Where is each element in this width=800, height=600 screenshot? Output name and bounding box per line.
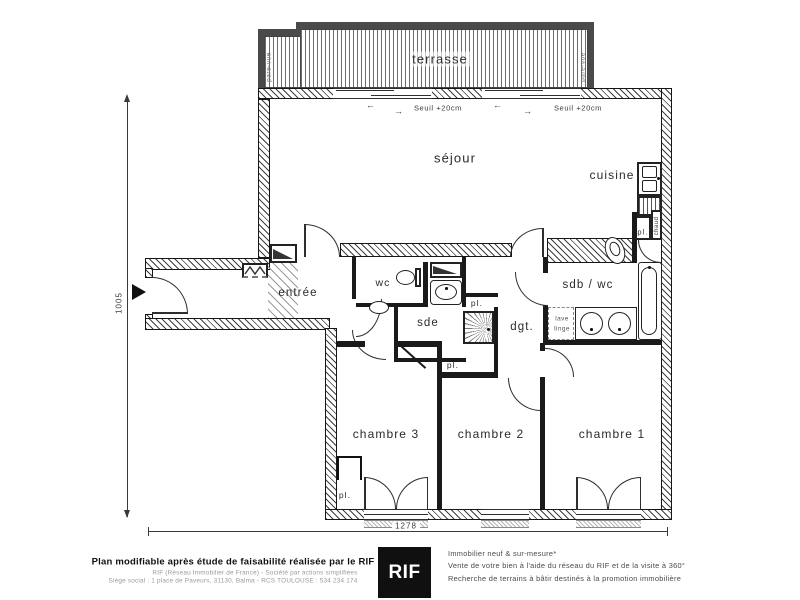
wall-ch2-ch3-divider — [437, 341, 442, 509]
pare-vue-left-label: pare-vue — [266, 52, 273, 82]
lave-linge-label-1: lave — [555, 316, 569, 323]
kitchen-sink-unit — [637, 162, 662, 196]
kitchen-basin-top — [642, 166, 657, 178]
chaud-label: chaud — [654, 217, 660, 236]
towel-shelf-box — [430, 262, 462, 278]
slider2-line-a — [485, 90, 543, 91]
dim-width-tick-left — [148, 527, 149, 536]
dgt-label: dgt. — [510, 321, 534, 333]
slider1-line-b — [371, 95, 431, 96]
floor-plan-image: terrasse pare-vue pare-vue ← → Seuil +20… — [0, 0, 800, 600]
bathtub-inner — [641, 267, 657, 335]
seuil-label-1: Seuil +20cm — [414, 104, 462, 113]
electrical-panel-box — [242, 263, 268, 278]
terrace-right-band — [587, 22, 594, 88]
ch2-door-arc — [508, 378, 541, 411]
footer-right-block: Immobilier neuf & sur-mesure* Vente de v… — [448, 548, 718, 585]
dim-width-tick-right — [667, 527, 668, 536]
pl-ch3-label: pl. — [339, 490, 351, 500]
pl-cuisine-label: pl. — [637, 228, 648, 237]
kitchen-faucet-dot — [657, 177, 660, 180]
sejour-entree-door-arc — [304, 224, 340, 257]
seuil-label-2: Seuil +20cm — [554, 104, 602, 113]
footer-right-line3: Recherche de terrains à bâtir destinés à… — [448, 573, 718, 585]
wall-kitchen-col — [632, 212, 637, 263]
footer-right-line2: Vente de votre bien à l'aide du réseau d… — [448, 560, 718, 572]
rif-logo: RIF — [378, 547, 431, 598]
ch1-window-leaf-right — [640, 477, 642, 509]
vanity-double-sink — [575, 307, 637, 340]
wall-sink-col-right — [462, 257, 466, 307]
wc-toilet-icon — [396, 270, 415, 285]
sdb-door-arc — [515, 272, 548, 306]
sde-sink-faucet-dot — [445, 287, 448, 290]
kitchen-basin-bottom — [642, 180, 657, 192]
ch2-window-sill — [481, 520, 529, 528]
washing-machine-box: lave linge — [548, 307, 574, 340]
ch3-window-arc-left — [364, 477, 396, 509]
ch3-closet — [337, 456, 362, 480]
sejour-dgt-door-arc — [510, 228, 543, 257]
dim-height-arrow-top — [124, 94, 130, 102]
dim-height-arrow-bottom — [124, 510, 130, 518]
chambre3-label: chambre 3 — [353, 427, 420, 441]
bathtub-icon — [638, 262, 662, 340]
entrance-door-arc — [152, 277, 188, 314]
sde-label: sde — [417, 317, 439, 329]
footer-left-bold: Plan modifiable après étude de faisabili… — [92, 557, 375, 568]
chambre2-label: chambre 2 — [458, 427, 525, 441]
pl-ch2-label: pl. — [447, 360, 459, 370]
bathtub-faucet-dot — [648, 266, 651, 269]
kitchen-closet-door-arc — [638, 240, 661, 263]
sejour-dgt-door-leaf — [542, 228, 544, 257]
slider1-arrow-left-icon: ← — [366, 100, 376, 110]
doormat-box — [270, 244, 297, 263]
vanity-dot-right — [618, 328, 621, 331]
wall-wc-sde-divider — [423, 262, 428, 306]
wall-pl-top — [462, 293, 498, 297]
vanity-basin-right — [608, 312, 631, 335]
wall-ch2-top — [442, 372, 498, 378]
sejour-label: séjour — [434, 151, 476, 166]
wall-sde-left — [394, 307, 398, 360]
shower-icon — [463, 311, 494, 344]
shower-drain-dot — [487, 328, 490, 331]
wall-dgt-left — [494, 307, 498, 378]
footer-right-line1: Immobilier neuf & sur-mesure* — [448, 548, 718, 560]
vanity-dot-left — [590, 328, 593, 331]
terrace-label: terrasse — [410, 52, 470, 67]
wall-corridor-bottom — [145, 318, 330, 330]
pl-sde-label: pl. — [471, 298, 483, 308]
sejour-entree-door-leaf — [304, 224, 306, 257]
sdb-wc-label: sdb / wc — [563, 279, 614, 291]
entrance-pointer-icon — [132, 284, 146, 300]
rif-logo-text: RIF — [388, 562, 420, 584]
wc-corner-sink-icon — [369, 301, 389, 314]
ch1-window-sill — [576, 520, 641, 528]
sdb-toilet-inner — [607, 240, 622, 258]
ch1-window-leaf-left — [576, 477, 578, 509]
shelf-icon — [432, 264, 460, 276]
wall-ch3-top-left — [337, 341, 365, 347]
dim-height-line — [127, 97, 128, 517]
slider2-arrow-right-icon: → — [523, 106, 533, 116]
slider1-line-a — [336, 90, 394, 91]
wall-top — [258, 88, 672, 99]
ch1-door-arc — [545, 348, 574, 377]
footer-left-line2: RIF (Réseau Immobilier de France) - Soci… — [152, 569, 357, 576]
ch2-window-midline — [481, 514, 529, 515]
ch1-window-midline — [576, 514, 641, 515]
ch3-window-leaf-left — [364, 477, 366, 509]
ch3-window-arc-right — [396, 477, 428, 509]
slider2-arrow-left-icon: ← — [493, 100, 503, 110]
zigzag-icon — [244, 265, 266, 276]
wall-sejour-left — [258, 99, 270, 258]
wall-ch1-ch2-divider — [540, 377, 545, 509]
wall-right — [661, 88, 672, 520]
ch3-window-leaf-right — [427, 477, 429, 509]
footer-left-line3: Siège social : 1 place de Paveurs, 31130… — [109, 577, 358, 584]
wall-chambers-left — [325, 328, 337, 520]
wall-wc-left — [352, 257, 356, 299]
slider2-line-b — [520, 95, 580, 96]
cuisine-label: cuisine — [589, 168, 634, 182]
ch3-window-midline — [364, 514, 428, 515]
wall-sdb-bottom — [543, 340, 662, 345]
wall-sdb-left-upper — [543, 257, 548, 273]
entrance-door-leaf — [152, 312, 188, 314]
ch1-window-arc-right — [608, 477, 641, 509]
wc-label: wc — [375, 277, 390, 289]
entree-label: entrée — [278, 287, 317, 299]
wedge-icon — [272, 246, 295, 261]
dim-width-label: 1278 — [392, 522, 420, 531]
slider1-arrow-right-icon: → — [394, 106, 404, 116]
dim-height-label: 1005 — [115, 292, 124, 314]
vanity-basin-left — [580, 312, 603, 335]
wc-toilet-tank — [415, 268, 421, 287]
dim-width-line — [148, 531, 668, 532]
lave-linge-label-2: linge — [554, 326, 570, 333]
ch1-window-arc-left — [576, 477, 608, 509]
pare-vue-right-label: pare-vue — [580, 52, 587, 82]
chambre1-label: chambre 1 — [579, 427, 646, 441]
wall-sejour-bottom — [340, 243, 512, 257]
